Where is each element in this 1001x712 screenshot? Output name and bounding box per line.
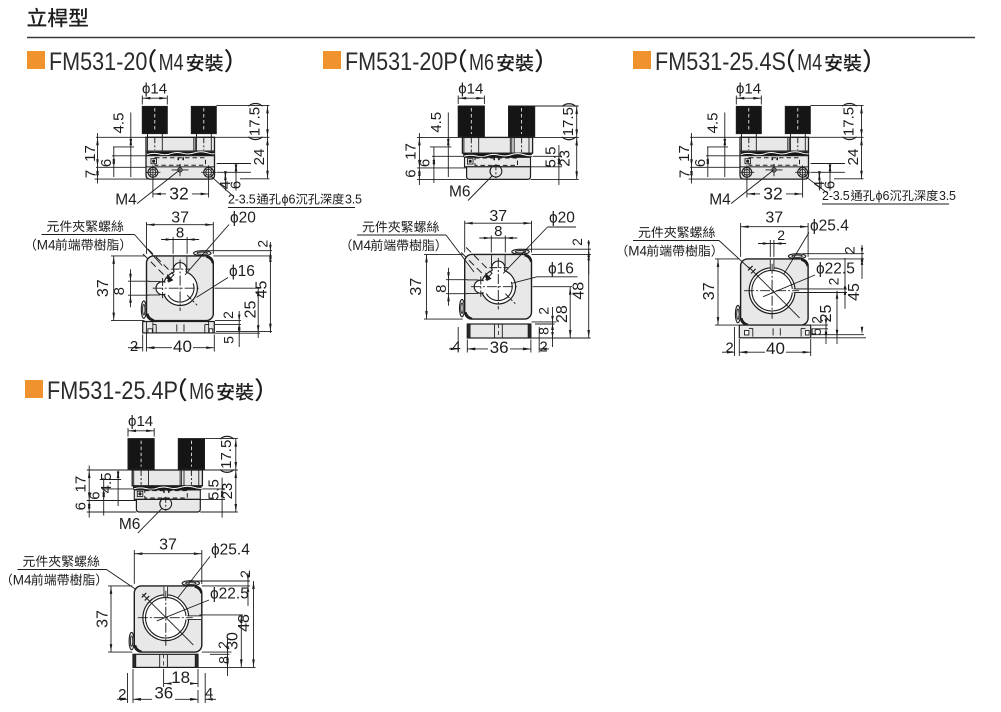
svg-text:6: 6 — [403, 169, 420, 177]
svg-text:8: 8 — [433, 285, 450, 293]
svg-text:5.5: 5.5 — [543, 147, 560, 168]
svg-text:5: 5 — [221, 336, 237, 344]
svg-text:45: 45 — [846, 283, 863, 301]
svg-text:ϕ14: ϕ14 — [128, 413, 153, 430]
svg-text:6: 6 — [822, 181, 839, 189]
svg-text:FM531-20P: FM531-20P — [345, 48, 458, 76]
svg-text:8: 8 — [216, 656, 232, 664]
svg-text:37: 37 — [765, 210, 783, 227]
svg-text:48: 48 — [571, 282, 588, 300]
svg-text:36: 36 — [154, 683, 173, 702]
svg-text:(17.5): (17.5) — [560, 102, 577, 141]
svg-text:(17.5): (17.5) — [841, 102, 858, 141]
svg-text:M4: M4 — [115, 192, 137, 209]
svg-text:6: 6 — [692, 159, 709, 167]
svg-text:2: 2 — [842, 246, 858, 254]
svg-text:3.5: 3.5 — [345, 193, 362, 207]
svg-text:6: 6 — [72, 502, 89, 510]
svg-text:M6: M6 — [469, 49, 494, 75]
svg-text:28: 28 — [554, 305, 571, 323]
svg-text:32: 32 — [169, 184, 188, 204]
svg-text:24: 24 — [845, 149, 862, 166]
svg-text:8: 8 — [176, 224, 184, 241]
svg-text:8: 8 — [494, 223, 502, 240]
svg-text:ϕ22.5: ϕ22.5 — [210, 586, 249, 603]
svg-text:6: 6 — [98, 159, 115, 167]
svg-text:FM531-25.4P: FM531-25.4P — [47, 377, 178, 405]
svg-text:ϕ6: ϕ6 — [282, 193, 296, 207]
svg-text:4.5: 4.5 — [98, 472, 115, 493]
svg-text:2: 2 — [569, 238, 585, 246]
svg-text:37: 37 — [159, 537, 177, 554]
svg-text:17: 17 — [72, 476, 89, 493]
svg-text:8: 8 — [536, 327, 552, 335]
svg-text:4.5: 4.5 — [704, 113, 721, 134]
svg-text:24: 24 — [251, 149, 268, 166]
svg-text:ϕ14: ϕ14 — [736, 81, 761, 98]
svg-text:5: 5 — [808, 328, 824, 336]
svg-text:2: 2 — [826, 277, 842, 285]
svg-text:2-3.5: 2-3.5 — [228, 193, 256, 207]
svg-text:17: 17 — [403, 143, 420, 160]
svg-text:4: 4 — [452, 339, 460, 356]
svg-text:4.5: 4.5 — [110, 113, 127, 134]
svg-text:2: 2 — [215, 641, 231, 649]
svg-text:ϕ16: ϕ16 — [548, 261, 574, 278]
svg-text:ϕ22.5: ϕ22.5 — [816, 261, 855, 278]
svg-text:2: 2 — [220, 311, 236, 319]
svg-text:M4: M4 — [797, 49, 822, 75]
svg-text:M6: M6 — [119, 516, 141, 533]
svg-text:ϕ14: ϕ14 — [142, 81, 167, 98]
svg-text:5.5: 5.5 — [205, 479, 222, 500]
svg-text:2: 2 — [725, 340, 733, 357]
svg-text:2: 2 — [808, 316, 824, 324]
svg-text:ϕ6: ϕ6 — [876, 189, 890, 203]
svg-text:M6: M6 — [449, 184, 471, 201]
svg-text:6: 6 — [228, 181, 245, 189]
svg-text:M4: M4 — [37, 238, 56, 253]
svg-text:25: 25 — [243, 301, 260, 319]
svg-text:M4: M4 — [709, 192, 731, 209]
svg-text:2: 2 — [539, 339, 547, 356]
svg-text:45: 45 — [254, 281, 271, 299]
svg-text:36: 36 — [490, 338, 509, 357]
svg-text:2: 2 — [255, 240, 271, 248]
svg-text:40: 40 — [766, 339, 785, 358]
svg-text:ϕ20: ϕ20 — [230, 210, 256, 227]
svg-text:40: 40 — [173, 337, 192, 356]
svg-text:M4: M4 — [13, 573, 32, 588]
svg-text:37: 37 — [701, 282, 718, 300]
svg-text:ϕ14: ϕ14 — [458, 81, 483, 98]
svg-text:2: 2 — [118, 686, 126, 703]
svg-text:(17.5): (17.5) — [247, 102, 264, 141]
svg-text:ϕ16: ϕ16 — [229, 263, 255, 280]
svg-text:37: 37 — [95, 279, 112, 297]
svg-text:2: 2 — [777, 227, 785, 243]
svg-text:(17.5): (17.5) — [218, 435, 235, 474]
svg-text:M6: M6 — [189, 378, 214, 404]
svg-text:ϕ20: ϕ20 — [549, 210, 575, 227]
svg-text:M4: M4 — [628, 244, 647, 259]
svg-text:37: 37 — [95, 610, 112, 628]
svg-text:32: 32 — [763, 184, 782, 204]
svg-text:FM531-25.4S: FM531-25.4S — [655, 48, 786, 76]
svg-text:3.5: 3.5 — [939, 189, 956, 203]
svg-text:2: 2 — [536, 307, 552, 315]
svg-text:ϕ25.4: ϕ25.4 — [211, 542, 250, 559]
svg-text:2: 2 — [237, 570, 253, 578]
svg-text:6: 6 — [417, 159, 434, 167]
svg-text:37: 37 — [408, 278, 425, 296]
svg-text:18: 18 — [171, 668, 190, 687]
svg-text:ϕ25.4: ϕ25.4 — [810, 218, 849, 235]
svg-text:48: 48 — [236, 614, 253, 632]
svg-text:8: 8 — [111, 287, 128, 295]
svg-text:M4: M4 — [352, 238, 371, 253]
svg-text:4.5: 4.5 — [428, 112, 445, 133]
svg-text:FM531-20: FM531-20 — [49, 48, 147, 76]
svg-text:2: 2 — [130, 338, 138, 355]
svg-text:M4: M4 — [159, 49, 184, 75]
svg-text:2-3.5: 2-3.5 — [822, 189, 850, 203]
